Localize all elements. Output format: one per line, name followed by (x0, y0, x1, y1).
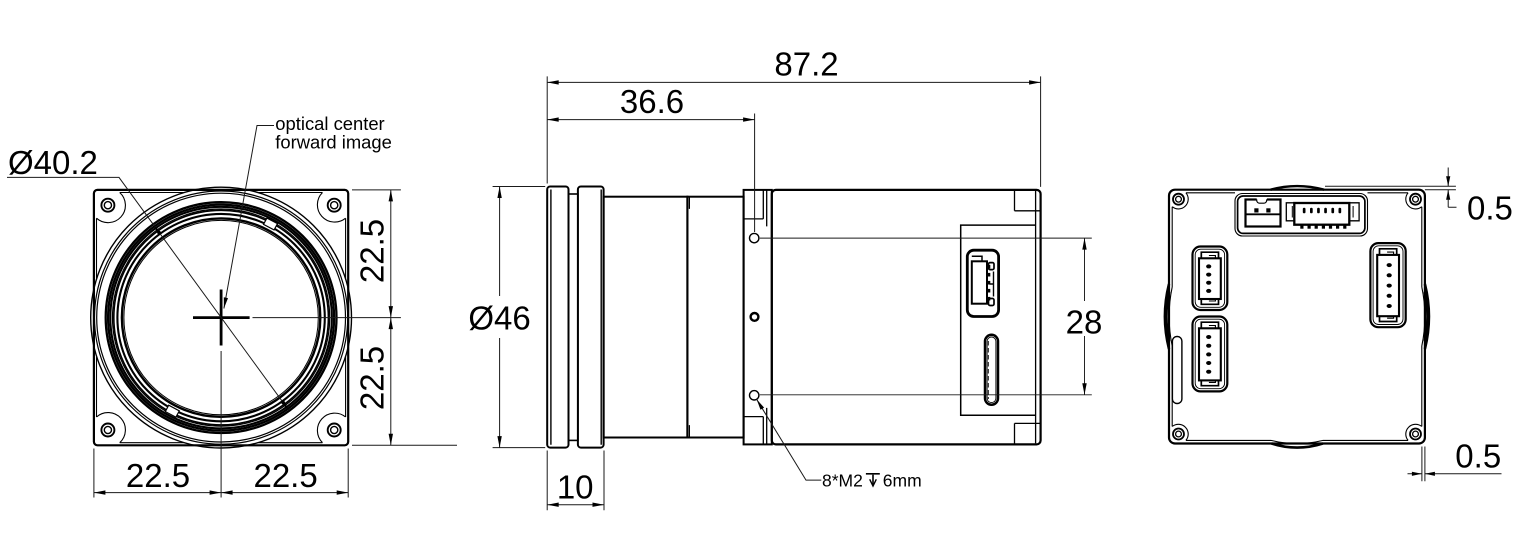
svg-text:8*M2: 8*M2 (822, 471, 863, 491)
svg-text:22.5: 22.5 (354, 346, 391, 410)
svg-text:22.5: 22.5 (354, 219, 391, 283)
svg-text:22.5: 22.5 (253, 457, 317, 494)
svg-text:22.5: 22.5 (126, 457, 190, 494)
svg-text:36.6: 36.6 (620, 83, 684, 120)
svg-text:6mm: 6mm (883, 471, 922, 491)
svg-text:0.5: 0.5 (1455, 438, 1501, 475)
svg-text:Ø46: Ø46 (468, 299, 530, 336)
svg-text:87.2: 87.2 (774, 46, 838, 83)
svg-text:28: 28 (1066, 304, 1103, 341)
svg-text:Ø40.2: Ø40.2 (8, 144, 98, 181)
svg-text:0.5: 0.5 (1467, 190, 1513, 227)
svg-text:forward image: forward image (275, 132, 392, 153)
svg-text:10: 10 (557, 468, 594, 505)
